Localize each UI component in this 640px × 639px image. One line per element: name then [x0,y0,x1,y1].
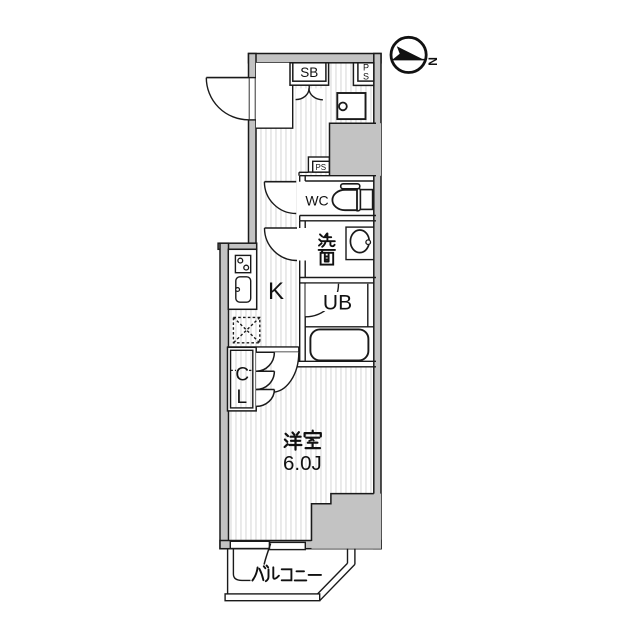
svg-text:N: N [425,57,439,66]
svg-text:WC: WC [305,193,328,209]
svg-text:K: K [268,278,284,305]
svg-text:UB: UB [323,292,352,315]
svg-text:C: C [235,365,249,386]
svg-text:SB: SB [300,65,318,80]
svg-text:L: L [237,387,248,408]
svg-text:S: S [363,71,369,81]
svg-text:PS: PS [315,163,326,172]
svg-text:6.0J: 6.0J [283,452,322,475]
